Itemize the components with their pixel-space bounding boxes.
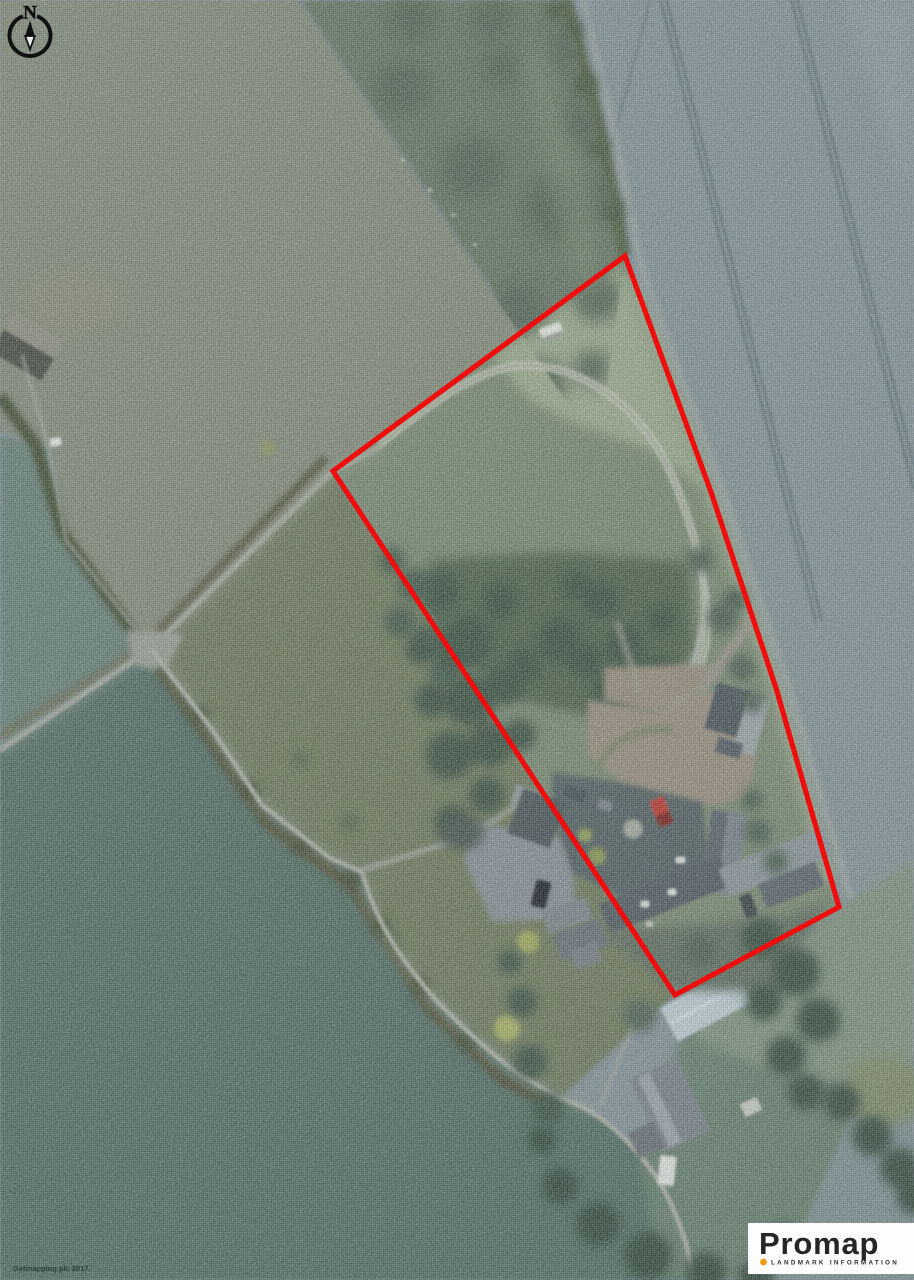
- svg-text:Getmapping plc 2017.: Getmapping plc 2017.: [13, 1264, 91, 1273]
- svg-text:Promap: Promap: [759, 1226, 879, 1261]
- svg-text:N: N: [23, 3, 37, 24]
- svg-text:LANDMARK INFORMATION: LANDMARK INFORMATION: [771, 1260, 899, 1267]
